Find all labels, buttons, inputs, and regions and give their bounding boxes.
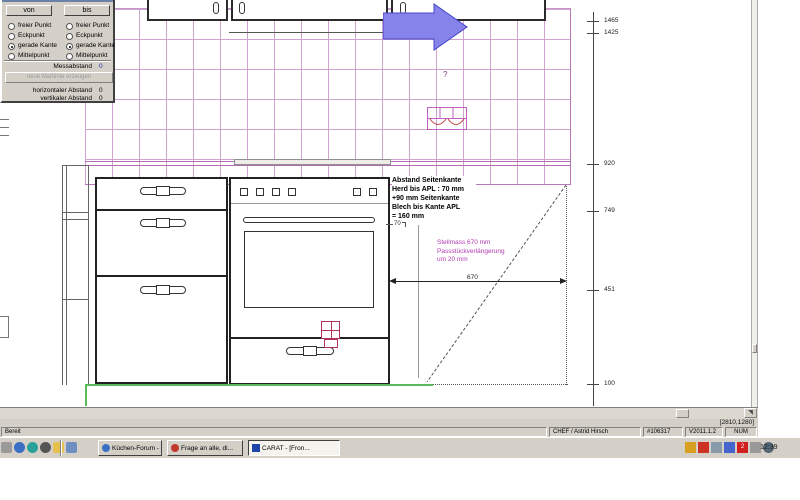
wall-section-line bbox=[62, 299, 89, 300]
ruler-tick bbox=[587, 211, 599, 212]
quick-launch-icon-4[interactable] bbox=[40, 442, 51, 453]
quick-launch-icon-5[interactable] bbox=[53, 442, 64, 453]
oven-drawer-line bbox=[231, 337, 388, 339]
arrow-left-icon bbox=[389, 278, 396, 284]
measurement-annotation: Abstand Seitenkante Herd bis APL : 70 mm… bbox=[392, 176, 476, 221]
ruler-tick bbox=[587, 290, 599, 291]
quick-launch-icon-6[interactable] bbox=[66, 442, 77, 453]
scrollbar-corner-button[interactable]: ◥ bbox=[744, 408, 757, 418]
vertical-distance-value: 0 bbox=[99, 95, 103, 102]
radio-von-gerade-kante[interactable] bbox=[8, 43, 15, 50]
plinth-line bbox=[85, 384, 433, 386]
radio-label: Eckpunkt bbox=[76, 32, 103, 39]
bis-button[interactable]: bis bbox=[64, 5, 110, 16]
taskbar-button-label: Küchen-Forum - ... bbox=[112, 445, 162, 452]
wall-section-line bbox=[88, 165, 89, 385]
oven-unit bbox=[229, 177, 390, 385]
radio-bis-eckpunkt[interactable] bbox=[66, 33, 73, 40]
dialog-title-strip bbox=[2, 0, 113, 2]
tray-icon-notification[interactable]: 2 bbox=[737, 442, 748, 453]
note-line: um 20 mm bbox=[437, 256, 517, 265]
ruler-label: 749 bbox=[604, 207, 615, 214]
taskbar-button-carat[interactable]: CARAT - [Fron... bbox=[248, 440, 340, 456]
drawer-handle bbox=[140, 219, 186, 227]
taskbar-clock: 12:39 bbox=[760, 444, 778, 451]
cursor-coordinates: [2810,1280] bbox=[720, 419, 754, 427]
messabstand-value: 0 bbox=[99, 63, 103, 70]
vertical-scrollbar-thumb[interactable] bbox=[752, 344, 757, 353]
cabinet-handle bbox=[239, 2, 245, 14]
horizontal-scrollbar[interactable]: ◥ bbox=[0, 407, 758, 419]
quick-launch-icon-2[interactable] bbox=[14, 442, 25, 453]
browser-icon bbox=[102, 444, 110, 452]
radio-von-freier-punkt[interactable] bbox=[8, 23, 15, 30]
quick-launch-icon-1[interactable] bbox=[1, 442, 12, 453]
taskbar-button-label: CARAT - [Fron... bbox=[262, 445, 310, 452]
drawer-handle bbox=[140, 187, 186, 195]
wall-section-line bbox=[62, 165, 63, 385]
coordinate-row: [2810,1280] bbox=[0, 419, 758, 427]
tray-icon-2[interactable] bbox=[698, 442, 709, 453]
von-button[interactable]: von bbox=[6, 5, 52, 16]
hood-symbol bbox=[427, 107, 467, 131]
status-user: CHEF / Astrid Hirsch bbox=[549, 427, 641, 437]
edge-stub-box bbox=[0, 316, 9, 338]
ruler-label: 920 bbox=[604, 160, 615, 167]
messabstand-label: Messabstand bbox=[30, 63, 92, 70]
radio-bis-mittelpunkt[interactable] bbox=[66, 53, 73, 60]
dialog-divider bbox=[4, 60, 111, 62]
app-screen: ? bbox=[0, 0, 800, 500]
status-numlock: NUM bbox=[725, 427, 757, 437]
measure-dialog: von bis freier Punkt Eckpunkt gerade Kan… bbox=[0, 0, 115, 103]
radio-label: freier Punkt bbox=[76, 22, 109, 29]
dimension-670-label: 670 bbox=[465, 274, 480, 281]
question-mark-annotation: ? bbox=[443, 70, 447, 79]
ruler-tick bbox=[587, 164, 599, 165]
status-id: #106317 bbox=[643, 427, 683, 437]
ruler-label: 1425 bbox=[604, 29, 618, 36]
radio-label: freier Punkt bbox=[18, 22, 51, 29]
wall-section-line bbox=[62, 212, 89, 213]
ruler-tick bbox=[587, 21, 599, 22]
dimension-670: 670 bbox=[389, 274, 567, 286]
blue-arrow-marker bbox=[383, 2, 469, 52]
status-ready: Bereit bbox=[1, 427, 547, 437]
plinth-edge bbox=[85, 384, 87, 406]
ruler-label: 1465 bbox=[604, 17, 618, 24]
taskbar-button-label: Frage an alle, di... bbox=[181, 445, 233, 452]
radio-von-eckpunkt[interactable] bbox=[8, 33, 15, 40]
annotation-line: +90 mm Seitenkante bbox=[392, 194, 476, 203]
ruler-label: 451 bbox=[604, 286, 615, 293]
oven-window bbox=[244, 231, 374, 308]
valance-line bbox=[229, 32, 383, 33]
radio-label: Eckpunkt bbox=[18, 32, 45, 39]
radio-label: gerade Kante bbox=[76, 42, 115, 49]
note-line: Stellmass 670 mm bbox=[437, 239, 517, 248]
drawer-front bbox=[97, 211, 226, 277]
oven-handle bbox=[243, 217, 375, 223]
stove-knob bbox=[288, 188, 296, 196]
quick-launch-icon-3[interactable] bbox=[27, 442, 38, 453]
oven-panel-line bbox=[231, 203, 388, 204]
connection-symbol bbox=[321, 321, 340, 339]
edge-stub-line bbox=[0, 135, 9, 136]
annotation-line: Herd bis APL : 70 mm bbox=[392, 185, 476, 194]
wall-section-line bbox=[62, 165, 89, 166]
dimension-70: 70 bbox=[386, 220, 406, 228]
stove-knob bbox=[240, 188, 248, 196]
taskbar-button-frage[interactable]: Frage an alle, di... bbox=[167, 440, 243, 456]
carat-app-icon bbox=[252, 444, 260, 452]
quick-launch bbox=[1, 442, 77, 453]
vertical-distance-label: vertikaler Abstand bbox=[10, 95, 92, 102]
drawer-front bbox=[97, 277, 226, 380]
tray-icon-4[interactable] bbox=[724, 442, 735, 453]
wall-section-line bbox=[66, 165, 67, 385]
radio-label: Mittelpunkt bbox=[18, 52, 49, 59]
stove-knob bbox=[256, 188, 264, 196]
status-bar: Bereit CHEF / Astrid Hirsch #106317 V201… bbox=[0, 427, 758, 437]
drawer-cabinet bbox=[95, 177, 228, 384]
stove-knob bbox=[369, 188, 377, 196]
drawer-front bbox=[97, 179, 226, 211]
tray-icon-1[interactable] bbox=[685, 442, 696, 453]
radio-label: gerade Kante bbox=[18, 42, 57, 49]
annotation-line: Abstand Seitenkante bbox=[392, 176, 476, 185]
drawer-handle bbox=[140, 286, 186, 294]
status-version: V2011.1.2 bbox=[685, 427, 723, 437]
browser-icon bbox=[171, 444, 179, 452]
edge-stub-line bbox=[0, 119, 9, 120]
note-line: Passstückverlängerung bbox=[437, 248, 517, 257]
dimension-70-label: 70 bbox=[394, 221, 401, 227]
horizontal-distance-label: horizontaler Abstand bbox=[10, 87, 92, 94]
radio-label: Mittelpunkt bbox=[76, 52, 107, 59]
edge-stub-line bbox=[0, 127, 9, 128]
radio-bis-freier-punkt[interactable] bbox=[66, 23, 73, 30]
taskbar-separator bbox=[60, 440, 62, 456]
stove-knob bbox=[353, 188, 361, 196]
height-ruler bbox=[593, 12, 594, 406]
radio-von-mittelpunkt[interactable] bbox=[8, 53, 15, 60]
wall-cabinet-middle bbox=[231, 0, 388, 21]
oven-drawer-handle bbox=[286, 347, 334, 355]
ruler-tick bbox=[587, 33, 599, 34]
wall-section-line bbox=[62, 219, 89, 220]
connection-symbol-base bbox=[324, 339, 338, 348]
annotation-line: Blech bis Kante APL bbox=[392, 203, 476, 212]
radio-bis-gerade-kante[interactable] bbox=[66, 43, 73, 50]
arrow-right-icon bbox=[560, 278, 567, 284]
niche-panel bbox=[234, 159, 391, 165]
cabinet-handle bbox=[213, 2, 219, 14]
vertical-scrollbar[interactable] bbox=[751, 0, 758, 407]
taskbar-button-kuechen-forum[interactable]: Küchen-Forum - ... bbox=[98, 440, 162, 456]
magenta-note: Stellmass 670 mm Passstückverlängerung u… bbox=[437, 239, 517, 265]
ruler-label: 100 bbox=[604, 380, 615, 387]
horizontal-distance-value: 0 bbox=[99, 87, 103, 94]
tray-icon-3[interactable] bbox=[711, 442, 722, 453]
extension-line bbox=[418, 225, 419, 378]
ruler-tick bbox=[587, 384, 599, 385]
stove-knob bbox=[272, 188, 280, 196]
create-dimension-button[interactable]: neue Maßlinie erzeugen bbox=[5, 72, 113, 83]
wall-cabinet-left bbox=[147, 0, 228, 21]
horizontal-scrollbar-thumb[interactable] bbox=[676, 409, 689, 418]
taskbar: Küchen-Forum - ... Frage an alle, di... … bbox=[0, 437, 800, 458]
